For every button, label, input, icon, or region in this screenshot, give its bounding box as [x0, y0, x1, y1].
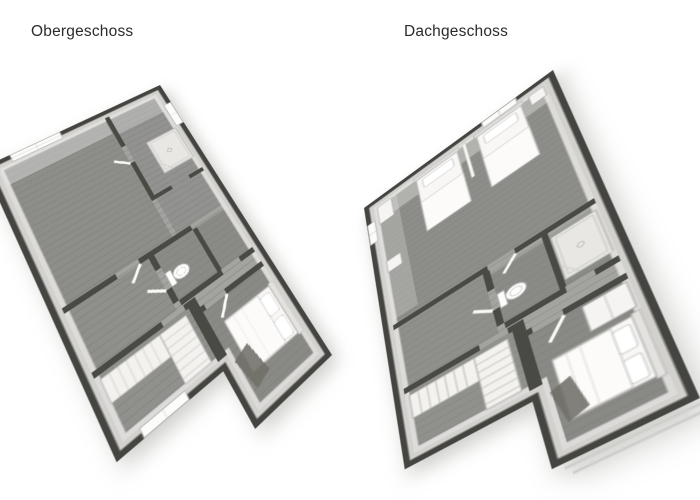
obergeschoss-plan-svg: [0, 85, 332, 500]
dachgeschoss-plan-svg: [364, 70, 700, 500]
dachgeschoss-3d-plan: [364, 70, 700, 500]
obergeschoss-3d-plan: [0, 85, 332, 500]
page-title: Obergeschoss: [31, 23, 133, 41]
screenshot-root: Obergeschoss Dachgeschoss: [0, 0, 700, 500]
page-title: Dachgeschoss: [404, 23, 508, 41]
